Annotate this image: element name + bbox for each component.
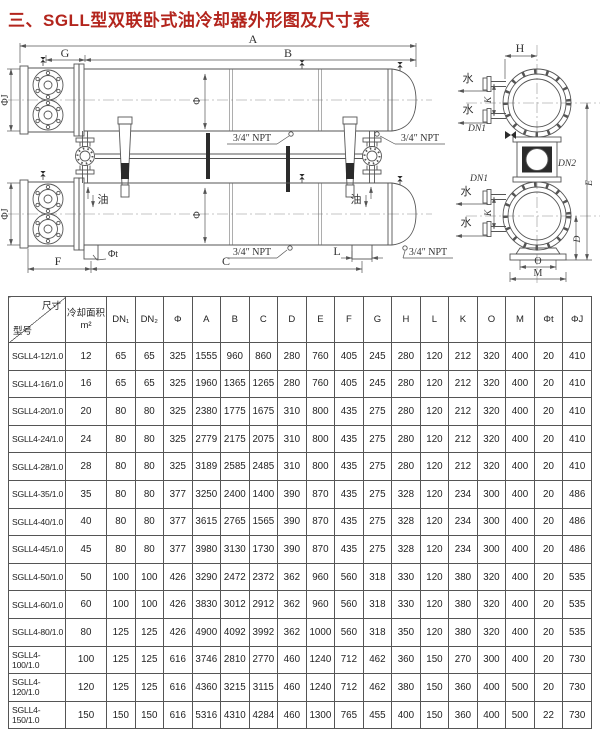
value-cell: 120	[420, 536, 449, 564]
value-cell: 3215	[221, 674, 250, 702]
value-cell: 275	[363, 480, 392, 508]
value-cell: 328	[392, 480, 421, 508]
model-cell: SGLL4-100/1.0	[9, 646, 66, 674]
model-cell: SGLL4-40/1.0	[9, 508, 66, 536]
value-cell: 212	[449, 453, 478, 481]
value-cell: 1240	[306, 646, 335, 674]
value-cell: 100	[107, 563, 136, 591]
dim-g-label: G	[61, 46, 70, 60]
value-cell: 320	[477, 398, 506, 426]
dn1-label: DN1	[469, 174, 488, 184]
value-cell: 80	[135, 398, 164, 426]
value-cell: 245	[363, 343, 392, 371]
value-cell: 2400	[221, 480, 250, 508]
end-view: DN2 H 水 水 K DN1 水 水 K DN1	[456, 41, 600, 283]
value-cell: 400	[477, 674, 506, 702]
value-cell: 400	[506, 398, 535, 426]
value-cell: 120	[420, 370, 449, 398]
dimension-table: 尺寸 型号 冷却面积 m²DN₁DN₂ΦABCDEFGHLKOMΦtΦJ SGL…	[8, 296, 592, 729]
value-cell: 280	[392, 453, 421, 481]
column-header: O	[477, 297, 506, 343]
value-cell: 460	[278, 646, 307, 674]
value-cell: 125	[135, 646, 164, 674]
model-cell: SGLL4-24/1.0	[9, 425, 66, 453]
value-cell: 435	[335, 508, 364, 536]
outline-drawing: A G B ΦJ Φ 3/4″ NPT 3/4″ NPT	[0, 33, 600, 289]
column-header: DN₂	[135, 297, 164, 343]
value-cell: 280	[392, 343, 421, 371]
value-cell: 330	[392, 591, 421, 619]
value-cell: 120	[420, 563, 449, 591]
value-cell: 80	[135, 480, 164, 508]
dn2-label: DN2	[557, 159, 576, 169]
value-cell: 400	[392, 701, 421, 729]
value-cell: 28	[66, 453, 107, 481]
npt-label: 3/4″ NPT	[401, 133, 439, 144]
value-cell: 318	[363, 591, 392, 619]
value-cell: 80	[135, 508, 164, 536]
column-header: H	[392, 297, 421, 343]
value-cell: 212	[449, 370, 478, 398]
value-cell: 2779	[192, 425, 221, 453]
value-cell: 960	[221, 343, 250, 371]
value-cell: 50	[66, 563, 107, 591]
value-cell: 320	[477, 343, 506, 371]
header-row: 尺寸 型号 冷却面积 m²DN₁DN₂ΦABCDEFGHLKOMΦtΦJ	[9, 297, 592, 343]
value-cell: 405	[335, 343, 364, 371]
dim-phi-label: Φ	[192, 211, 203, 218]
value-cell: 300	[477, 536, 506, 564]
column-header: B	[221, 297, 250, 343]
value-cell: 24	[66, 425, 107, 453]
water-label: 水	[461, 185, 472, 198]
value-cell: 410	[563, 370, 592, 398]
value-cell: 300	[477, 480, 506, 508]
value-cell: 20	[534, 536, 563, 564]
value-cell: 362	[278, 618, 307, 646]
sight-gauge-symbol	[343, 117, 357, 197]
value-cell: 2175	[221, 425, 250, 453]
value-cell: 100	[66, 646, 107, 674]
value-cell: 860	[249, 343, 278, 371]
value-cell: 125	[107, 646, 136, 674]
value-cell: 2372	[249, 563, 278, 591]
model-cell: SGLL4-20/1.0	[9, 398, 66, 426]
water-label: 水	[461, 216, 472, 229]
value-cell: 3189	[192, 453, 221, 481]
value-cell: 120	[420, 591, 449, 619]
column-header: C	[249, 297, 278, 343]
value-cell: 410	[563, 453, 592, 481]
value-cell: 435	[335, 453, 364, 481]
value-cell: 280	[392, 370, 421, 398]
dim-e-label: E	[585, 180, 595, 187]
table-row: SGLL4-20/1.02080803252380177516753108004…	[9, 398, 592, 426]
value-cell: 3290	[192, 563, 221, 591]
value-cell: 500	[506, 674, 535, 702]
value-cell: 760	[306, 343, 335, 371]
value-cell: 535	[563, 563, 592, 591]
value-cell: 125	[135, 618, 164, 646]
column-header: DN₁	[107, 297, 136, 343]
value-cell: 80	[135, 425, 164, 453]
value-cell: 800	[306, 453, 335, 481]
value-cell: 275	[363, 398, 392, 426]
value-cell: 120	[420, 480, 449, 508]
document-page: 三、SGLL型双联卧式油冷却器外形图及尺寸表	[0, 0, 600, 729]
value-cell: 4092	[221, 618, 250, 646]
value-cell: 120	[420, 398, 449, 426]
value-cell: 426	[164, 591, 193, 619]
column-header: A	[192, 297, 221, 343]
corner-label-size: 尺寸	[42, 301, 61, 313]
value-cell: 150	[420, 701, 449, 729]
value-cell: 150	[420, 646, 449, 674]
dim-h-label: H	[516, 41, 525, 55]
value-cell: 3012	[221, 591, 250, 619]
value-cell: 280	[278, 370, 307, 398]
value-cell: 730	[563, 701, 592, 729]
value-cell: 2765	[221, 508, 250, 536]
value-cell: 460	[278, 701, 307, 729]
value-cell: 275	[363, 453, 392, 481]
dim-l-label: L	[333, 244, 340, 258]
table-body: SGLL4-12/1.01265653251555960860280760405…	[9, 343, 592, 729]
value-cell: 435	[335, 480, 364, 508]
side-view-upper: A G B ΦJ Φ 3/4″ NPT 3/4″ NPT	[0, 33, 445, 144]
value-cell: 328	[392, 508, 421, 536]
value-cell: 400	[506, 536, 535, 564]
table-row: SGLL4-45/1.04580803773980313017303908704…	[9, 536, 592, 564]
value-cell: 5316	[192, 701, 221, 729]
value-cell: 3615	[192, 508, 221, 536]
value-cell: 65	[135, 370, 164, 398]
value-cell: 2810	[221, 646, 250, 674]
value-cell: 2585	[221, 453, 250, 481]
model-cell: SGLL4-28/1.0	[9, 453, 66, 481]
value-cell: 120	[420, 453, 449, 481]
value-cell: 234	[449, 536, 478, 564]
value-cell: 1240	[306, 674, 335, 702]
table-corner-cell: 尺寸 型号	[9, 297, 66, 343]
table-row: SGLL4-35/1.03580803773250240014003908704…	[9, 480, 592, 508]
value-cell: 320	[477, 591, 506, 619]
oil-label: 油	[351, 192, 362, 206]
table-row: SGLL4-12/1.01265653251555960860280760405…	[9, 343, 592, 371]
value-cell: 1300	[306, 701, 335, 729]
value-cell: 2380	[192, 398, 221, 426]
value-cell: 435	[335, 536, 364, 564]
value-cell: 1675	[249, 398, 278, 426]
value-cell: 400	[506, 646, 535, 674]
value-cell: 400	[506, 618, 535, 646]
value-cell: 800	[306, 398, 335, 426]
value-cell: 400	[506, 453, 535, 481]
value-cell: 125	[107, 674, 136, 702]
value-cell: 426	[164, 563, 193, 591]
value-cell: 150	[135, 701, 164, 729]
column-header: F	[335, 297, 364, 343]
page-title: 三、SGLL型双联卧式油冷却器外形图及尺寸表	[0, 0, 600, 33]
value-cell: 120	[420, 618, 449, 646]
value-cell: 16	[66, 370, 107, 398]
dim-m-label: M	[534, 268, 543, 279]
value-cell: 1400	[249, 480, 278, 508]
value-cell: 616	[164, 701, 193, 729]
value-cell: 280	[392, 398, 421, 426]
value-cell: 20	[534, 591, 563, 619]
value-cell: 325	[164, 425, 193, 453]
value-cell: 150	[66, 701, 107, 729]
column-header: K	[449, 297, 478, 343]
value-cell: 380	[449, 618, 478, 646]
value-cell: 80	[107, 425, 136, 453]
value-cell: 212	[449, 343, 478, 371]
value-cell: 400	[506, 591, 535, 619]
dim-d-label: D	[573, 235, 583, 243]
value-cell: 1960	[192, 370, 221, 398]
table-row: SGLL4-120/1.0120125125616436032153115460…	[9, 674, 592, 702]
value-cell: 125	[135, 674, 164, 702]
value-cell: 410	[563, 425, 592, 453]
value-cell: 20	[534, 563, 563, 591]
value-cell: 535	[563, 591, 592, 619]
value-cell: 2912	[249, 591, 278, 619]
dim-phij-label: ΦJ	[0, 94, 11, 105]
value-cell: 20	[534, 618, 563, 646]
model-cell: SGLL4-60/1.0	[9, 591, 66, 619]
value-cell: 120	[420, 508, 449, 536]
table-row: SGLL4-150/1.0150150150616531643104284460…	[9, 701, 592, 729]
value-cell: 616	[164, 674, 193, 702]
value-cell: 270	[449, 646, 478, 674]
value-cell: 1775	[221, 398, 250, 426]
value-cell: 80	[107, 536, 136, 564]
value-cell: 486	[563, 508, 592, 536]
value-cell: 20	[534, 480, 563, 508]
model-cell: SGLL4-150/1.0	[9, 701, 66, 729]
column-header: Φ	[164, 297, 193, 343]
value-cell: 360	[449, 674, 478, 702]
value-cell: 80	[66, 618, 107, 646]
dim-o-label: O	[534, 256, 541, 267]
table-row: SGLL4-40/1.04080803773615276515653908704…	[9, 508, 592, 536]
value-cell: 80	[135, 453, 164, 481]
value-cell: 150	[420, 674, 449, 702]
value-cell: 20	[66, 398, 107, 426]
table-row: SGLL4-28/1.02880803253189258524853108004…	[9, 453, 592, 481]
model-cell: SGLL4-50/1.0	[9, 563, 66, 591]
column-header: ΦJ	[563, 297, 592, 343]
value-cell: 80	[107, 453, 136, 481]
value-cell: 80	[107, 398, 136, 426]
value-cell: 320	[477, 425, 506, 453]
value-cell: 1730	[249, 536, 278, 564]
table-row: SGLL4-24/1.02480803252779217520753108004…	[9, 425, 592, 453]
value-cell: 2075	[249, 425, 278, 453]
model-cell: SGLL4-35/1.0	[9, 480, 66, 508]
value-cell: 20	[534, 370, 563, 398]
value-cell: 234	[449, 480, 478, 508]
value-cell: 2770	[249, 646, 278, 674]
value-cell: 4284	[249, 701, 278, 729]
value-cell: 4900	[192, 618, 221, 646]
value-cell: 320	[477, 563, 506, 591]
value-cell: 212	[449, 398, 478, 426]
value-cell: 20	[534, 398, 563, 426]
value-cell: 40	[66, 508, 107, 536]
value-cell: 350	[392, 618, 421, 646]
value-cell: 390	[278, 536, 307, 564]
value-cell: 20	[534, 674, 563, 702]
oil-label: 油	[98, 192, 109, 206]
value-cell: 380	[449, 591, 478, 619]
value-cell: 280	[278, 343, 307, 371]
value-cell: 4310	[221, 701, 250, 729]
value-cell: 1555	[192, 343, 221, 371]
value-cell: 870	[306, 480, 335, 508]
value-cell: 535	[563, 618, 592, 646]
value-cell: 310	[278, 425, 307, 453]
value-cell: 362	[278, 591, 307, 619]
value-cell: 360	[392, 646, 421, 674]
value-cell: 800	[306, 425, 335, 453]
value-cell: 310	[278, 453, 307, 481]
dim-b-label: B	[284, 46, 292, 60]
npt-label: 3/4″ NPT	[409, 247, 447, 258]
value-cell: 320	[477, 618, 506, 646]
value-cell: 150	[107, 701, 136, 729]
value-cell: 20	[534, 453, 563, 481]
value-cell: 400	[506, 480, 535, 508]
value-cell: 400	[506, 508, 535, 536]
value-cell: 730	[563, 646, 592, 674]
value-cell: 460	[278, 674, 307, 702]
model-cell: SGLL4-80/1.0	[9, 618, 66, 646]
value-cell: 12	[66, 343, 107, 371]
value-cell: 380	[392, 674, 421, 702]
value-cell: 462	[363, 674, 392, 702]
value-cell: 377	[164, 480, 193, 508]
value-cell: 486	[563, 480, 592, 508]
npt-label: 3/4″ NPT	[233, 133, 271, 144]
table-row: SGLL4-80/1.08012512542649004092399236210…	[9, 618, 592, 646]
value-cell: 400	[506, 563, 535, 591]
value-cell: 4360	[192, 674, 221, 702]
value-cell: 20	[534, 425, 563, 453]
value-cell: 100	[135, 591, 164, 619]
dim-f-label: F	[55, 254, 62, 268]
value-cell: 3746	[192, 646, 221, 674]
model-cell: SGLL4-12/1.0	[9, 343, 66, 371]
dim-phi-label: Φ	[192, 97, 203, 104]
value-cell: 960	[306, 591, 335, 619]
dim-a-label: A	[249, 33, 258, 46]
value-cell: 320	[477, 370, 506, 398]
value-cell: 1000	[306, 618, 335, 646]
model-cell: SGLL4-45/1.0	[9, 536, 66, 564]
value-cell: 765	[335, 701, 364, 729]
column-header: L	[420, 297, 449, 343]
value-cell: 712	[335, 674, 364, 702]
value-cell: 560	[335, 563, 364, 591]
value-cell: 120	[66, 674, 107, 702]
value-cell: 275	[363, 425, 392, 453]
value-cell: 390	[278, 508, 307, 536]
value-cell: 400	[477, 701, 506, 729]
valve-symbol	[363, 138, 382, 174]
dim-k-label: K	[484, 209, 494, 217]
value-cell: 35	[66, 480, 107, 508]
value-cell: 410	[563, 398, 592, 426]
value-cell: 760	[306, 370, 335, 398]
value-cell: 3992	[249, 618, 278, 646]
value-cell: 712	[335, 646, 364, 674]
dn1-label: DN1	[467, 124, 486, 134]
value-cell: 60	[66, 591, 107, 619]
table-row: SGLL4-60/1.06010010042638303012291236296…	[9, 591, 592, 619]
value-cell: 20	[534, 646, 563, 674]
interconnect-piping	[76, 117, 382, 197]
value-cell: 960	[306, 563, 335, 591]
value-cell: 400	[506, 370, 535, 398]
value-cell: 3250	[192, 480, 221, 508]
value-cell: 500	[506, 701, 535, 729]
value-cell: 120	[420, 343, 449, 371]
value-cell: 275	[363, 536, 392, 564]
value-cell: 325	[164, 398, 193, 426]
value-cell: 65	[107, 370, 136, 398]
value-cell: 405	[335, 370, 364, 398]
value-cell: 435	[335, 425, 364, 453]
value-cell: 3830	[192, 591, 221, 619]
value-cell: 318	[363, 618, 392, 646]
value-cell: 360	[449, 701, 478, 729]
column-header: Φt	[534, 297, 563, 343]
value-cell: 3980	[192, 536, 221, 564]
value-cell: 310	[278, 398, 307, 426]
value-cell: 560	[335, 591, 364, 619]
value-cell: 400	[506, 343, 535, 371]
value-cell: 212	[449, 425, 478, 453]
dim-c-label: C	[222, 254, 230, 268]
value-cell: 870	[306, 508, 335, 536]
value-cell: 80	[107, 508, 136, 536]
value-cell: 120	[420, 425, 449, 453]
value-cell: 80	[135, 536, 164, 564]
value-cell: 435	[335, 398, 364, 426]
value-cell: 730	[563, 674, 592, 702]
value-cell: 325	[164, 453, 193, 481]
value-cell: 100	[107, 591, 136, 619]
value-cell: 280	[392, 425, 421, 453]
value-cell: 3115	[249, 674, 278, 702]
value-cell: 560	[335, 618, 364, 646]
value-cell: 362	[278, 563, 307, 591]
value-cell: 100	[135, 563, 164, 591]
value-cell: 870	[306, 536, 335, 564]
value-cell: 1365	[221, 370, 250, 398]
value-cell: 462	[363, 646, 392, 674]
value-cell: 426	[164, 618, 193, 646]
value-cell: 20	[534, 343, 563, 371]
column-header: M	[506, 297, 535, 343]
value-cell: 300	[477, 646, 506, 674]
value-cell: 245	[363, 370, 392, 398]
value-cell: 616	[164, 646, 193, 674]
value-cell: 330	[392, 563, 421, 591]
dim-k-label: K	[484, 96, 494, 104]
